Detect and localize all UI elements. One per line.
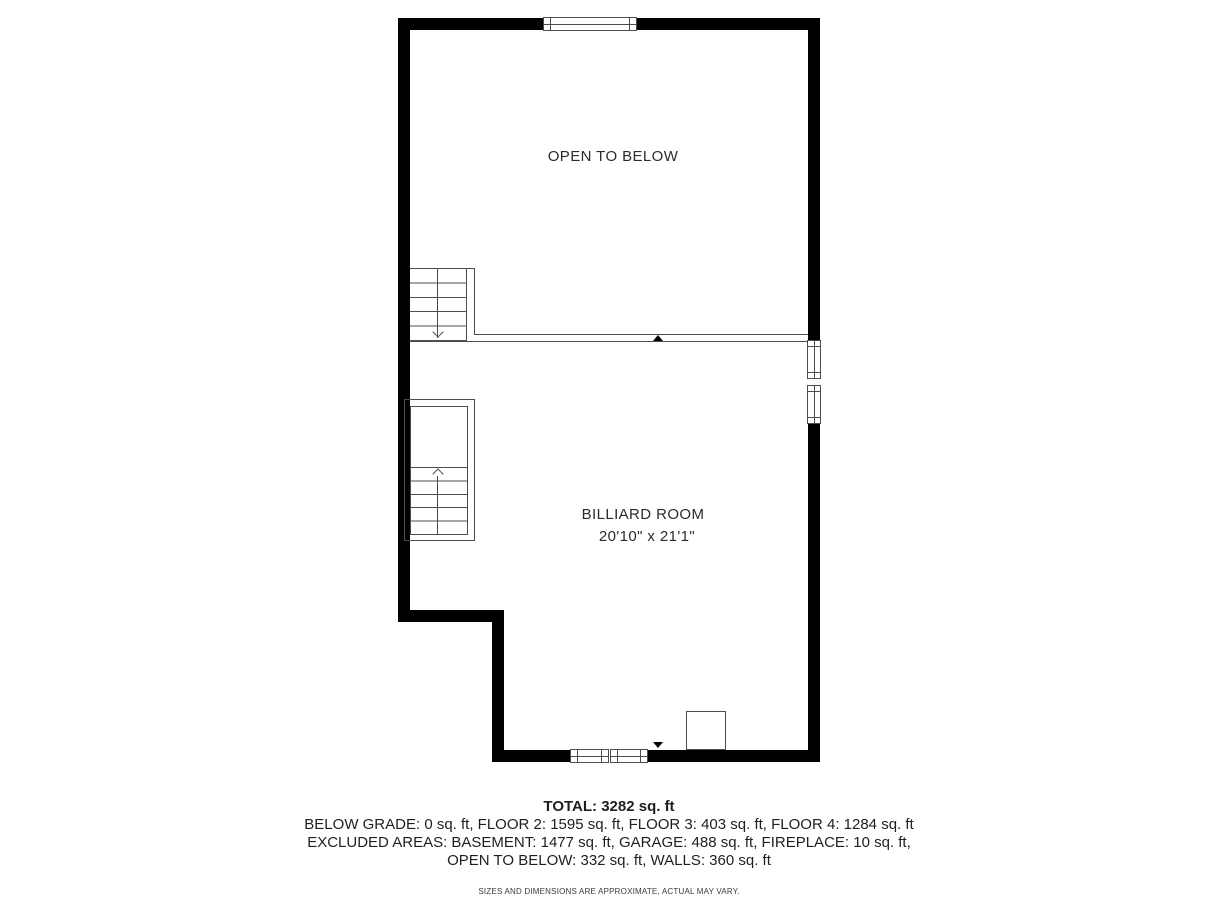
room-divider-line	[410, 341, 808, 342]
railing-horizontal	[474, 334, 808, 335]
billiard-room-label: BILLIARD ROOM	[582, 506, 705, 523]
dimension-arrow-up-icon	[653, 335, 663, 341]
window-bottom-left	[570, 749, 609, 763]
excluded-areas-text-1: EXCLUDED AREAS: BASEMENT: 1477 sq. ft, G…	[0, 834, 1218, 852]
area-summary: TOTAL: 3282 sq. ft BELOW GRADE: 0 sq. ft…	[0, 798, 1218, 896]
window-right-upper	[807, 340, 821, 379]
window-frame-cap	[550, 18, 551, 30]
window-frame-cap	[640, 750, 641, 762]
window-frame-cap	[629, 18, 630, 30]
window-frame-cap	[808, 346, 820, 347]
wall-right-upper	[808, 18, 820, 340]
dimension-arrow-left-icon	[402, 542, 408, 552]
window-frame-cap	[808, 372, 820, 373]
railing-vertical	[474, 268, 475, 335]
wall-step-vertical	[492, 610, 504, 762]
wall-top-left	[398, 18, 543, 30]
disclaimer-text: SIZES AND DIMENSIONS ARE APPROXIMATE, AC…	[0, 887, 1218, 896]
window-frame-cap	[808, 417, 820, 418]
wall-bottom-left	[492, 750, 570, 762]
window-right-lower	[807, 385, 821, 424]
wall-right-lower	[808, 424, 820, 762]
window-frame-cap	[577, 750, 578, 762]
excluded-areas-text-2: OPEN TO BELOW: 332 sq. ft, WALLS: 360 sq…	[0, 852, 1218, 870]
window-bottom-right	[610, 749, 648, 763]
wall-top-right	[637, 18, 820, 30]
dimension-arrow-right-icon	[808, 542, 814, 552]
open-to-below-label: OPEN TO BELOW	[548, 148, 679, 165]
wall-bottom-right	[648, 750, 820, 762]
floor-plan: OPEN TO BELOW BILLIARD ROOM 20'10" x 21'…	[0, 0, 1218, 914]
window-frame-cap	[601, 750, 602, 762]
floor-areas-text: BELOW GRADE: 0 sq. ft, FLOOR 2: 1595 sq.…	[0, 816, 1218, 834]
total-area-text: TOTAL: 3282 sq. ft	[0, 798, 1218, 816]
window-frame-cap	[808, 391, 820, 392]
staircase-up-centerline	[437, 476, 438, 534]
billiard-room-dimensions: 20'10" x 21'1"	[599, 528, 695, 545]
dimension-arrow-down-icon	[653, 742, 663, 748]
fireplace	[686, 711, 726, 750]
wall-step-horizontal	[398, 610, 504, 622]
window-pane-line	[544, 24, 636, 25]
window-top	[543, 17, 637, 31]
window-frame-cap	[617, 750, 618, 762]
